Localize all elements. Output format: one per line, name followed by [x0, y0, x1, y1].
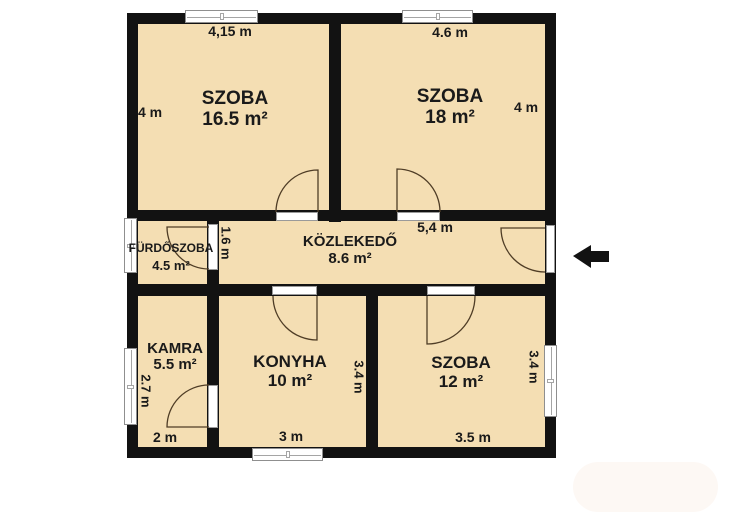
door-swing-szoba-12: [427, 296, 475, 344]
entrance-arrow-icon: [573, 245, 609, 268]
dim-kamra-height: 2.7 m: [139, 374, 154, 407]
room-label-szoba-165: SZOBA 16.5 m²: [202, 88, 269, 130]
room-name: SZOBA: [202, 88, 269, 109]
dim-szoba-18-width: 4.6 m: [432, 24, 468, 40]
dim-szoba-165-width: 4,15 m: [208, 23, 252, 39]
room-label-szoba-12: SZOBA 12 m²: [431, 353, 491, 391]
room-area: 10 m²: [253, 371, 327, 390]
dim-konyha-width: 3 m: [279, 428, 303, 444]
room-name: KÖZLEKEDŐ: [303, 233, 397, 250]
door-swing-entrance: [501, 228, 545, 272]
dim-hall-left-height: 1.6 m: [219, 226, 234, 259]
room-name: SZOBA: [417, 86, 484, 107]
dim-szoba-12-height: 3.4 m: [527, 350, 542, 383]
room-name: FÜRDŐSZOBA: [129, 240, 214, 257]
door-swing-szoba-165: [276, 170, 318, 212]
floor-plan: SZOBA 16.5 m² SZOBA 18 m² FÜRDŐSZOBA 4.5…: [0, 0, 730, 516]
room-area: 18 m²: [417, 107, 484, 128]
dim-hall-width: 5,4 m: [417, 219, 453, 235]
room-label-furdoszoba: FÜRDŐSZOBA 4.5 m²: [129, 240, 214, 274]
room-area: 4.5 m²: [129, 257, 214, 274]
dim-kamra-width: 2 m: [153, 429, 177, 445]
dim-konyha-height: 3.4 m: [352, 360, 367, 393]
room-area: 5.5 m²: [147, 357, 203, 373]
dim-szoba-18-height: 4 m: [514, 99, 538, 115]
dim-szoba-165-height: 4 m: [138, 104, 162, 120]
room-name: KAMRA: [147, 341, 203, 357]
watermark-smudge: [573, 462, 718, 512]
room-name: SZOBA: [431, 353, 491, 372]
dim-szoba-12-width: 3.5 m: [455, 429, 491, 445]
room-label-kamra: KAMRA 5.5 m²: [147, 341, 203, 373]
door-swing-szoba-18: [397, 169, 440, 212]
room-area: 16.5 m²: [202, 109, 269, 130]
room-area: 8.6 m²: [303, 250, 397, 267]
room-name: KONYHA: [253, 352, 327, 371]
room-label-kozlekedo: KÖZLEKEDŐ 8.6 m²: [303, 233, 397, 267]
room-label-konyha: KONYHA 10 m²: [253, 352, 327, 390]
room-area: 12 m²: [431, 372, 491, 391]
door-swing-konyha: [273, 296, 317, 340]
door-swing-kamra: [167, 385, 209, 427]
room-label-szoba-18: SZOBA 18 m²: [417, 86, 484, 128]
